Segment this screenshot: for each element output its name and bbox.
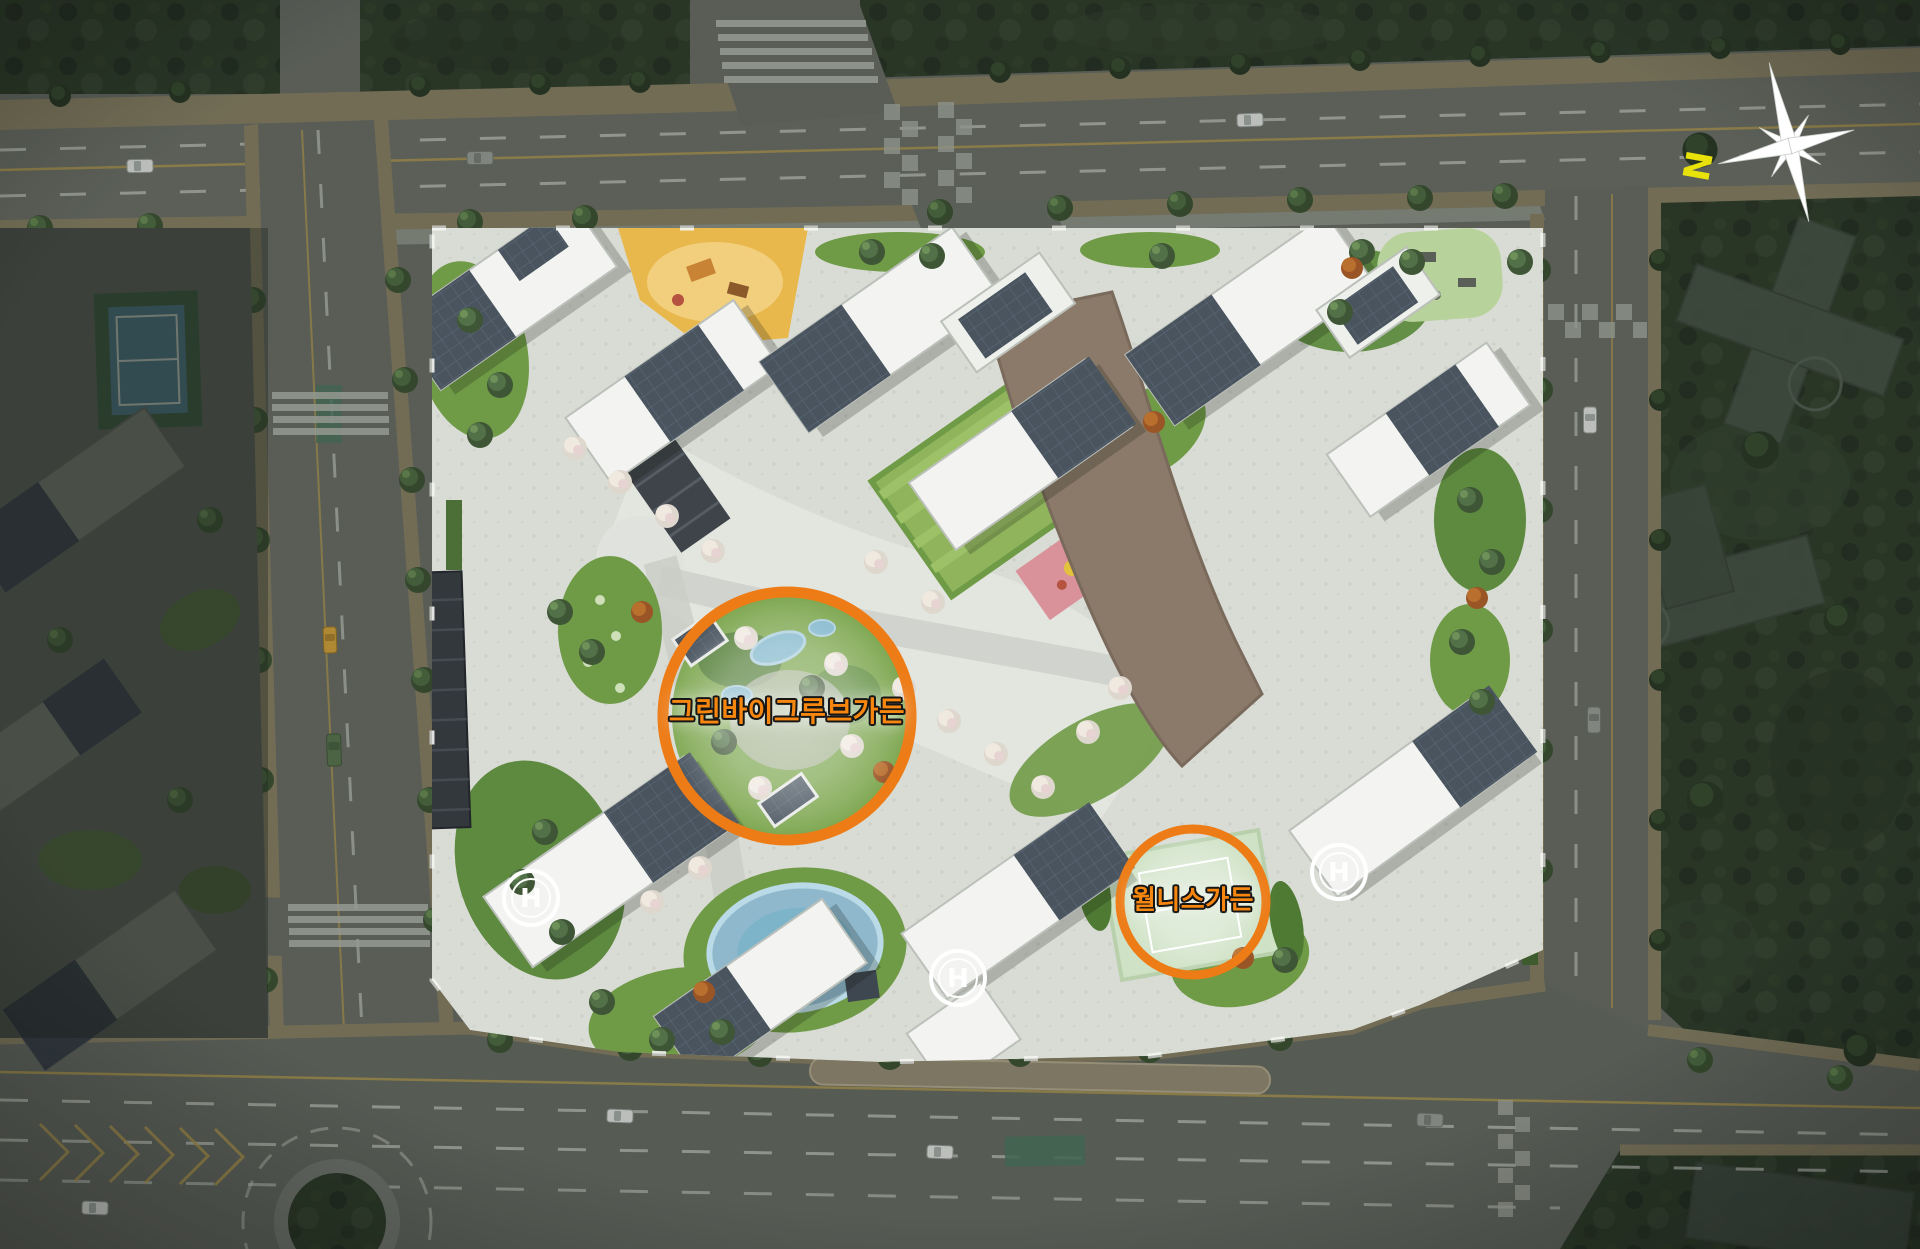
site-plan-map: H [0,0,1920,1249]
callout-label-green-by-groove-garden: 그린바이그루브가든 [669,690,905,730]
callout-label-wellness-garden: 월니스가든 [1132,880,1254,917]
site-plan-canvas: H [0,0,1920,1249]
vignette [0,0,1920,1249]
